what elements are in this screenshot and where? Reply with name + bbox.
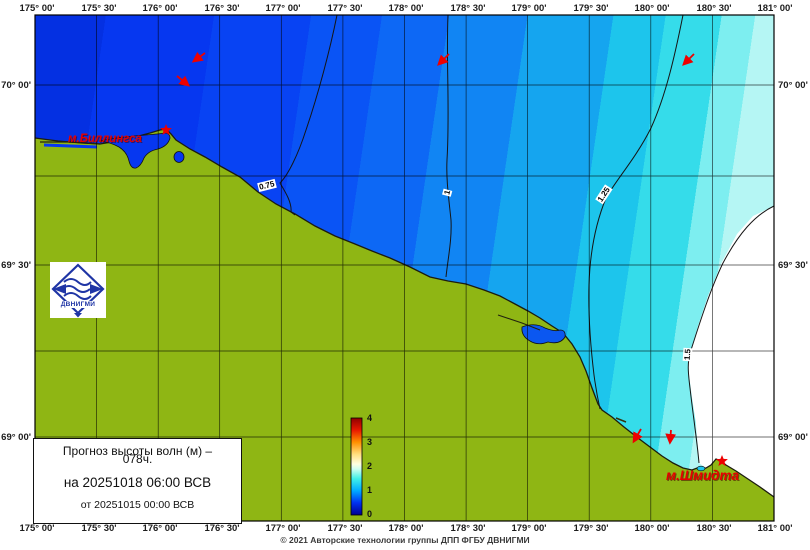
bottom-axis-label: 179° 30' — [561, 523, 621, 534]
top-axis-label: 176° 30' — [192, 3, 252, 14]
bottom-axis-label: 176° 00' — [130, 523, 190, 534]
top-axis-label: 180° 00' — [622, 3, 682, 14]
colorbar-tick: 3 — [367, 437, 372, 447]
wave-direction-arrow — [670, 430, 671, 442]
right-axis-label: 70° 00' — [778, 80, 810, 91]
top-axis-label: 177° 00' — [253, 3, 313, 14]
coastal-lagoon — [44, 145, 97, 147]
wave-forecast-map-page: 175° 00' 175° 30' 176° 00' 176° 30' 177°… — [0, 0, 810, 550]
top-axis-label: 180° 30' — [684, 3, 744, 14]
forecast-valid-time: на 20251018 06:00 ВСВ — [34, 475, 241, 490]
bottom-axis-label: 181° 00' — [745, 523, 805, 534]
top-axis-label: 179° 00' — [499, 3, 559, 14]
top-axis-label: 179° 30' — [561, 3, 621, 14]
top-axis-label: 177° 30' — [315, 3, 375, 14]
billings-pond — [174, 152, 184, 163]
bottom-axis-label: 178° 30' — [438, 523, 498, 534]
top-axis-label: 178° 30' — [438, 3, 498, 14]
right-axis-label: 69° 30' — [778, 260, 810, 271]
forecast-issue-time: от 20251015 00:00 ВСВ — [34, 499, 241, 511]
bottom-axis-label: 179° 00' — [499, 523, 559, 534]
bottom-axis-label: 177° 30' — [315, 523, 375, 534]
bottom-axis-label: 180° 00' — [622, 523, 682, 534]
top-axis-label: 181° 00' — [745, 3, 805, 14]
colorbar-tick: 2 — [367, 461, 372, 471]
left-axis-label: 70° 00' — [0, 80, 31, 91]
top-axis-label: 175° 30' — [69, 3, 129, 14]
colorbar — [351, 418, 362, 515]
place-label-billings: м.Биллингса — [68, 133, 142, 145]
colorbar-tick: 1 — [367, 485, 372, 495]
bottom-axis-label: 175° 30' — [69, 523, 129, 534]
bottom-axis-label: 178° 00' — [376, 523, 436, 534]
bottom-axis-label: 175° 00' — [7, 523, 67, 534]
bottom-axis-label: 176° 30' — [192, 523, 252, 534]
bottom-axis-label: 177° 00' — [253, 523, 313, 534]
bottom-axis-label: 180° 30' — [684, 523, 744, 534]
place-label-schmidt: м.Шмидта — [666, 468, 739, 483]
colorbar-tick: 4 — [367, 413, 372, 423]
logo-caption: ДВНИГМИ — [52, 301, 104, 308]
contour-label-1.5: 1.5 — [683, 348, 693, 362]
right-axis-label: 69° 00' — [778, 432, 810, 443]
dvnigmi-logo — [50, 262, 106, 318]
colorbar-tick: 0 — [367, 509, 372, 519]
left-axis-label: 69° 00' — [0, 432, 31, 443]
left-axis-label: 69° 30' — [0, 260, 31, 271]
top-axis-label: 178° 00' — [376, 3, 436, 14]
forecast-info-box: Прогноз высоты волн (м) – 078ч. на 20251… — [33, 438, 242, 524]
copyright-line: © 2021 Авторские технологии группы ДПП Ф… — [0, 535, 810, 545]
top-axis-label: 175° 00' — [7, 3, 67, 14]
top-axis-label: 176° 00' — [130, 3, 190, 14]
